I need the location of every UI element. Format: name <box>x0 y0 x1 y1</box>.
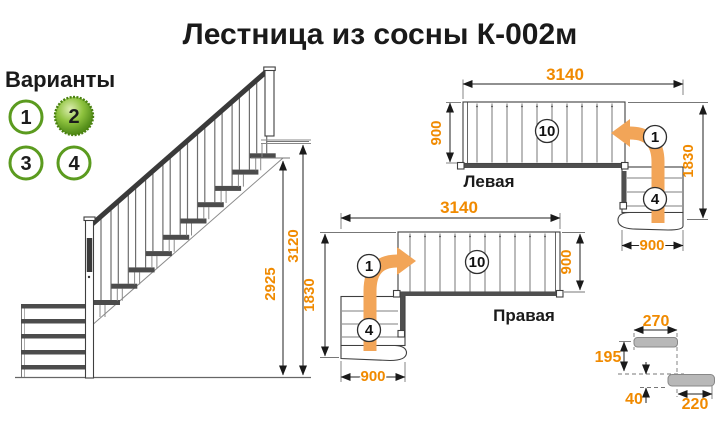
tread-dot <box>536 106 538 108</box>
curved-starting-step <box>618 213 683 231</box>
stringer-beam <box>459 164 629 169</box>
variants-selector: Варианты 1 2 3 4 <box>5 67 115 179</box>
post-mark <box>458 163 465 170</box>
drawing-canvas: Лестница из сосны К-002м Варианты 1 2 3 … <box>0 0 722 428</box>
tread-dot <box>491 106 493 108</box>
svg-text:1: 1 <box>365 258 373 275</box>
tread-dot <box>566 106 568 108</box>
svg-text:10: 10 <box>469 254 486 271</box>
variant-option-1[interactable]: 1 <box>10 101 42 133</box>
dim-lower-width: 900 <box>639 237 664 254</box>
stack-tread <box>21 304 93 309</box>
svg-text:10: 10 <box>539 123 556 140</box>
dim-flight-width: 900 <box>558 249 575 274</box>
stair-drawing-page: Лестница из сосны К-002м Варианты 1 2 3 … <box>0 0 722 428</box>
svg-text:1: 1 <box>651 129 659 146</box>
stringer-beam <box>400 296 405 332</box>
variant-number: 3 <box>20 153 31 175</box>
tread-dot <box>409 236 411 238</box>
tread-dot <box>476 106 478 108</box>
dim-flight-width: 900 <box>428 120 445 145</box>
lower-flight-front <box>21 304 93 377</box>
dim-lower-width: 900 <box>360 368 385 385</box>
plan-left-label: Левая <box>464 172 515 191</box>
step-profile-detail: 270 195 40 220 <box>595 313 715 413</box>
badge-lower-steps: 4 <box>644 188 667 211</box>
dim-tread-thickness: 40 <box>625 391 643 408</box>
plan-right-label: Правая <box>493 306 555 325</box>
post-mark <box>398 331 405 338</box>
badge-main-steps: 10 <box>466 251 489 274</box>
tread-dot <box>439 236 441 238</box>
dim-total-depth: 1830 <box>680 144 697 177</box>
svg-text:4: 4 <box>651 191 660 208</box>
tread <box>94 300 120 305</box>
dim-stair-height: 2925 <box>262 267 279 300</box>
dim-tread-run: 220 <box>682 396 709 413</box>
tread <box>146 251 172 256</box>
stack-tread <box>21 350 93 355</box>
variant-number: 1 <box>20 107 31 129</box>
stack-tread <box>21 319 93 324</box>
variant-option-2-selected[interactable]: 2 <box>55 97 93 135</box>
post-mark <box>394 291 401 298</box>
variant-number: 2 <box>68 106 79 128</box>
page-title: Лестница из сосны К-002м <box>183 18 578 51</box>
handrail <box>90 71 267 226</box>
variant-option-4[interactable]: 4 <box>58 147 90 179</box>
dim-total-depth: 1830 <box>301 278 318 311</box>
tread <box>215 186 241 191</box>
tread-dot <box>484 236 486 238</box>
tread-dot <box>521 106 523 108</box>
tread-dot <box>581 106 583 108</box>
variant-option-3[interactable]: 3 <box>10 147 42 179</box>
plan-view-right: 3140 1830 900 900 1 4 10 Правая <box>301 198 585 385</box>
stringer-beam <box>622 171 627 204</box>
tread <box>111 284 137 289</box>
tread-dot <box>469 236 471 238</box>
tread-dot <box>611 106 613 108</box>
post-mark <box>620 203 627 210</box>
tread-dot <box>454 236 456 238</box>
tread-dot <box>529 236 531 238</box>
variant-number: 4 <box>68 153 80 175</box>
post-mark <box>557 291 564 298</box>
dim-total-height: 3120 <box>285 229 302 262</box>
tread-dot <box>424 236 426 238</box>
plan-view-left: 3140 900 1830 900 10 1 4 Левая <box>428 65 708 254</box>
tread-dot <box>551 106 553 108</box>
dim-tread-depth: 270 <box>643 313 670 330</box>
dim-length: 3140 <box>546 65 584 84</box>
lower-tread-profile <box>668 375 715 387</box>
svg-text:4: 4 <box>365 322 374 339</box>
stack-tread <box>21 365 93 370</box>
badge-first-step: 1 <box>644 126 667 149</box>
tread-dot <box>514 236 516 238</box>
bottom-newel-post <box>84 217 95 378</box>
post-mark <box>622 163 629 170</box>
upper-tread-profile <box>634 338 678 348</box>
badge-first-step: 1 <box>358 255 381 278</box>
variants-label: Варианты <box>5 67 115 92</box>
tread <box>232 170 258 175</box>
dim-step-rise: 195 <box>595 349 622 366</box>
tread <box>163 235 189 240</box>
stack-tread <box>21 334 93 339</box>
tread <box>181 219 207 224</box>
badge-lower-steps: 4 <box>358 319 381 342</box>
tread-dot <box>499 236 501 238</box>
tread-dot <box>596 106 598 108</box>
dim-length: 3140 <box>440 198 478 217</box>
badge-main-steps: 10 <box>536 120 559 143</box>
tread <box>198 202 224 207</box>
main-flight <box>94 71 276 317</box>
top-newel-post <box>264 67 275 136</box>
stringer-beam <box>395 292 564 297</box>
tread-dot <box>506 106 508 108</box>
tread-dot <box>544 236 546 238</box>
tread <box>129 267 155 272</box>
